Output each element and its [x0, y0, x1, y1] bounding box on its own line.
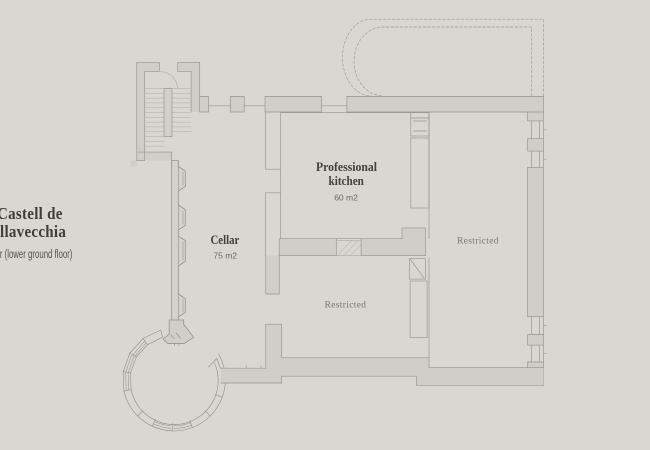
svg-text:Restricted: Restricted [457, 237, 499, 247]
svg-text:60 m2: 60 m2 [334, 193, 358, 203]
svg-text:Cellar: Cellar [211, 233, 240, 247]
svg-text:Restricted: Restricted [325, 301, 367, 311]
svg-text:kitchen: kitchen [329, 174, 364, 188]
svg-text:75 m2: 75 m2 [213, 251, 237, 261]
svg-text:Professional: Professional [316, 160, 377, 174]
